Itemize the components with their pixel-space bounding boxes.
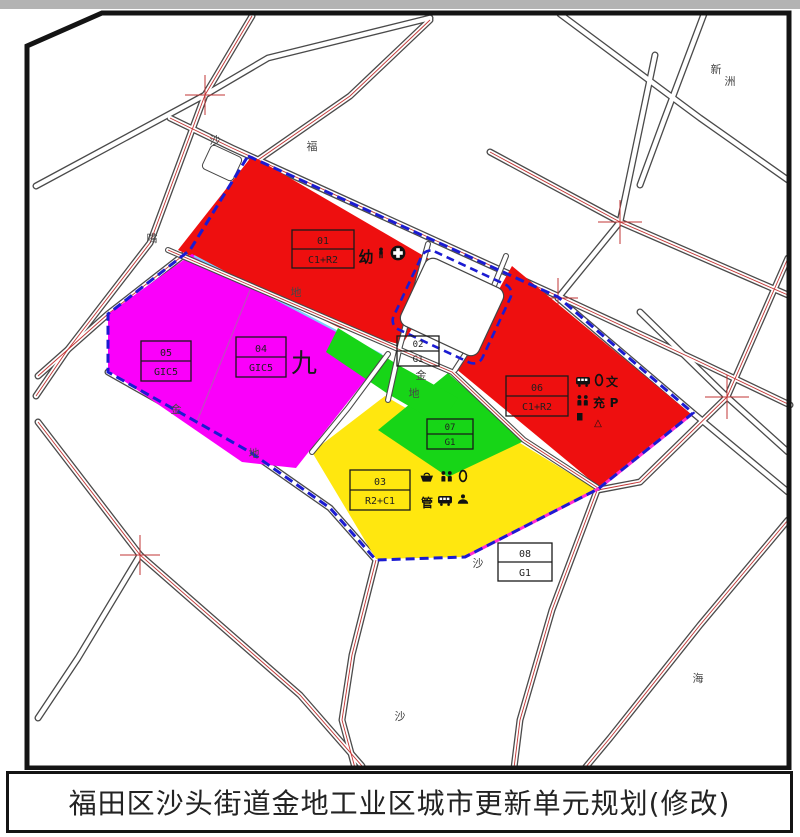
svg-text:嘴: 嘴 [147, 232, 158, 245]
hospital-cross-icon [391, 246, 406, 261]
planning-map: 01 C1+R2 幼 05 GIC5 04 GIC5 九 02 G1 [0, 0, 800, 770]
svg-text:R2+C1: R2+C1 [365, 496, 395, 507]
svg-text:金: 金 [171, 402, 182, 416]
svg-text:沙: 沙 [473, 557, 484, 570]
svg-text:G1: G1 [445, 438, 456, 448]
nine-annotation: 九 [291, 349, 317, 379]
title-box: 福田区沙头街道金地工业区城市更新单元规划(修改) [6, 771, 793, 833]
svg-text:沙: 沙 [395, 710, 406, 723]
svg-text:海: 海 [693, 671, 704, 685]
svg-text:洲: 洲 [725, 75, 736, 88]
planning-drawing: 01 C1+R2 幼 05 GIC5 04 GIC5 九 02 G1 [0, 0, 800, 837]
svg-text:07: 07 [445, 423, 456, 433]
svg-text:01: 01 [317, 236, 329, 247]
drawing-title-bar: 福田区沙头街道金地工业区城市更新单元规划(修改) [0, 770, 800, 837]
svg-text:GIC5: GIC5 [154, 367, 178, 378]
svg-text:C1+R2: C1+R2 [308, 255, 338, 266]
svg-text:沙: 沙 [210, 134, 221, 147]
svg-text:新: 新 [711, 62, 722, 76]
svg-text:地: 地 [291, 286, 302, 299]
svg-text:金: 金 [416, 368, 427, 382]
svg-text:地: 地 [409, 387, 420, 400]
charging-icon: 充 [593, 395, 605, 410]
svg-text:地: 地 [249, 447, 260, 460]
svg-text:C1+R2: C1+R2 [522, 402, 552, 413]
svg-text:GIC5: GIC5 [249, 363, 273, 374]
facility-icon [577, 413, 583, 421]
svg-text:G1: G1 [519, 568, 531, 579]
triangle-icon: △ [594, 418, 602, 429]
svg-text:福: 福 [307, 139, 318, 153]
zone-08-label: 08 G1 [498, 543, 552, 581]
kindergarten-icon: 幼 [358, 248, 373, 266]
culture-icon: 文 [606, 374, 619, 389]
management-icon: 管 [421, 495, 433, 510]
svg-text:06: 06 [531, 383, 543, 394]
drawing-title: 福田区沙头街道金地工业区城市更新单元规划(修改) [69, 782, 731, 822]
svg-text:04: 04 [255, 344, 267, 355]
scan-edge-band [0, 0, 800, 9]
svg-text:03: 03 [374, 477, 386, 488]
svg-text:08: 08 [519, 549, 531, 560]
parking-icon: P [610, 396, 619, 410]
svg-text:05: 05 [160, 348, 172, 359]
svg-text:G1: G1 [413, 355, 424, 365]
svg-text:02: 02 [413, 340, 424, 350]
